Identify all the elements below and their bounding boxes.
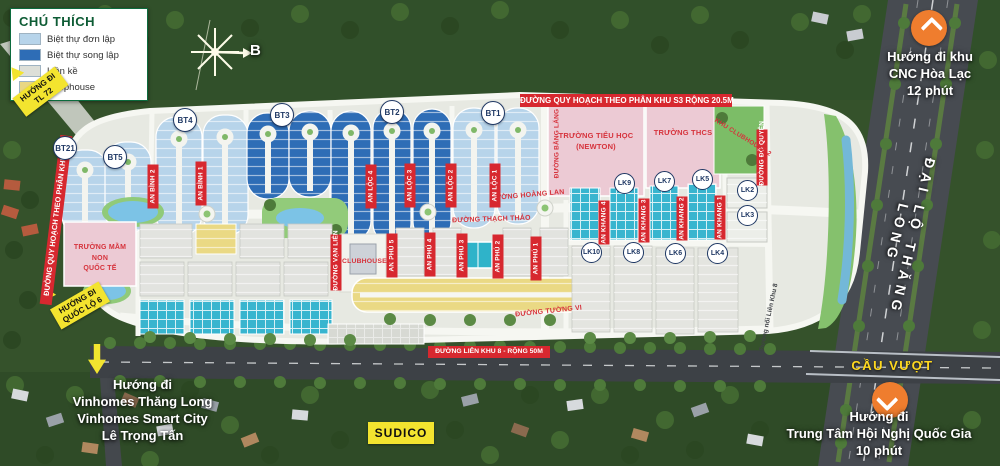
direction-vinhomes-line2: Vinhomes Thăng Long <box>40 393 245 410</box>
block-badge-lk5: LK5 <box>692 169 713 190</box>
street-an-loc-3: AN LỘC 3 <box>405 164 416 208</box>
block-badge-lk10: LK10 <box>581 242 602 263</box>
block-badge-lk4: LK4 <box>707 243 728 264</box>
street-van-lien: ĐƯỜNG VẠN LIÊN <box>331 235 342 291</box>
legend-title: CHÚ THÍCH <box>19 14 139 29</box>
direction-hoinghi-line1: Hướng đi <box>758 408 1000 425</box>
legend-item-lienke: Liền kề <box>19 65 139 77</box>
label-tieu-hoc-line1: TRƯỜNG TIỂU HỌC <box>550 130 642 141</box>
street-an-phu-5: AN PHÚ 5 <box>387 234 398 278</box>
badge-sudico: SUDICO <box>368 422 434 444</box>
block-badge-lk2: LK2 <box>737 180 758 201</box>
label-thcs: TRƯỜNG THCS <box>650 128 716 137</box>
label-mam-non: TRƯỜNG MẦM NON QUỐC TẾ <box>66 243 134 275</box>
label-overpass: CẦU VƯỢT <box>845 358 940 373</box>
block-badge-bt4: BT4 <box>173 108 197 132</box>
legend-item-villa-single: Biệt thự đơn lập <box>19 33 139 45</box>
street-an-phu-2: AN PHÚ 2 <box>493 235 504 279</box>
block-badge-lk7: LK7 <box>654 171 675 192</box>
direction-hoinghi-line2: Trung Tâm Hội Nghị Quốc Gia <box>758 425 1000 442</box>
label-tieu-hoc-line2: (NEWTON) <box>550 141 642 152</box>
legend-chip-villa-single <box>19 33 41 45</box>
street-an-loc-2: AN LỘC 2 <box>446 164 457 208</box>
direction-cnc-text: Hướng đi khu CNC Hòa Lạc 12 phút <box>862 48 998 99</box>
direction-cnc-line3: 12 phút <box>862 82 998 99</box>
street-an-binh-1: AN BÌNH 1 <box>196 162 207 206</box>
street-an-khang-3: AN KHANG 3 <box>639 199 650 243</box>
masterplan-map: CHÚ THÍCH Biệt thự đơn lập Biệt thự song… <box>0 0 1000 466</box>
street-an-phu-1: AN PHÚ 1 <box>531 237 542 281</box>
legend-chip-villa-double <box>19 49 41 61</box>
street-an-loc-4: AN LỘC 4 <box>366 165 377 209</box>
chevron-up-icon <box>921 17 944 40</box>
street-an-khang-1: AN KHANG 1 <box>715 196 726 240</box>
direction-vinhomes-line4: Lê Trọng Tấn <box>40 427 245 444</box>
direction-vinhomes-text: Hướng đi Vinhomes Thăng Long Vinhomes Sm… <box>40 376 245 444</box>
street-an-phu-3: AN PHÚ 3 <box>457 234 468 278</box>
label-clubhouse1: CLUBHOUSE 1 <box>342 258 393 265</box>
block-badge-lk6: LK6 <box>665 243 686 264</box>
banner-bottom-road: ĐƯỜNG LIÊN KHU 8 - RỘNG 50M <box>428 346 550 358</box>
block-badge-bt5: BT5 <box>103 145 127 169</box>
street-do-quyen: ĐƯỜNG ĐỖ QUYÊN <box>757 130 768 186</box>
block-badge-lk3: LK3 <box>737 205 758 226</box>
direction-cnc-line2: CNC Hòa Lạc <box>862 65 998 82</box>
block-badge-lk8: LK8 <box>623 242 644 263</box>
direction-cnc-line1: Hướng đi khu <box>862 48 998 65</box>
street-an-binh-2: AN BÌNH 2 <box>148 165 159 209</box>
block-badge-bt2: BT2 <box>380 100 404 124</box>
direction-hoinghi-line3: 10 phút <box>758 442 1000 459</box>
direction-cnc-icon <box>911 10 947 46</box>
direction-hoinghi-text: Hướng đi Trung Tâm Hội Nghị Quốc Gia 10 … <box>758 408 1000 459</box>
block-badge-bt3: BT3 <box>270 103 294 127</box>
legend-label: Biệt thự đơn lập <box>47 34 115 45</box>
direction-vinhomes-line3: Vinhomes Smart City <box>40 410 245 427</box>
street-an-loc-1: AN LỘC 1 <box>490 164 501 208</box>
street-an-phu-4: AN PHÚ 4 <box>425 233 436 277</box>
label-tieu-hoc: TRƯỜNG TIỂU HỌC (NEWTON) <box>550 130 642 153</box>
street-an-khang-4: AN KHANG 4 <box>599 201 610 245</box>
compass-north-label: B <box>250 42 261 59</box>
block-badge-bt1: BT1 <box>481 101 505 125</box>
direction-vinhomes-line1: Hướng đi <box>40 376 245 393</box>
label-mam-non-line1: TRƯỜNG MẦM NON <box>66 243 134 264</box>
street-an-khang-2: AN KHANG 2 <box>677 197 688 241</box>
block-badge-bt21: BT21 <box>53 136 77 160</box>
legend-item-villa-double: Biệt thự song lập <box>19 49 139 61</box>
label-mam-non-line2: QUỐC TẾ <box>66 264 134 275</box>
legend-label: Biệt thự song lập <box>47 50 119 61</box>
banner-top-road: ĐƯỜNG QUY HOẠCH THEO PHÂN KHU S3 RỘNG 20… <box>520 94 732 107</box>
block-badge-lk9: LK9 <box>614 173 635 194</box>
